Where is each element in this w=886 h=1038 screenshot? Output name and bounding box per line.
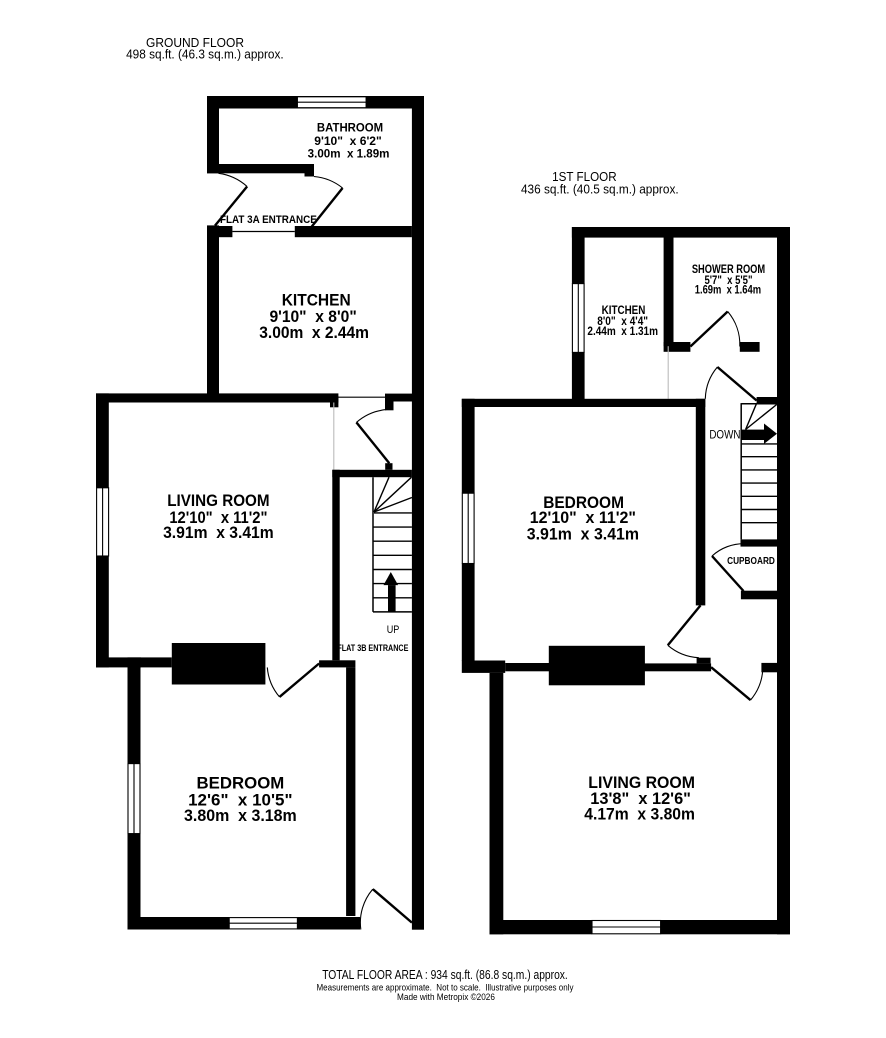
svg-text:FLAT 3A ENTRANCE: FLAT 3A ENTRANCE (220, 214, 317, 226)
svg-text:3.00m x 1.89m: 3.00m x 1.89m (308, 149, 390, 161)
svg-text:4.17m x 3.80m: 4.17m x 3.80m (584, 805, 695, 824)
svg-text:9'10" x 6'2": 9'10" x 6'2" (314, 136, 382, 148)
svg-text:498 sq.ft. (46.3 sq.m.) approx: 498 sq.ft. (46.3 sq.m.) approx. (126, 47, 284, 62)
svg-text:436 sq.ft. (40.5 sq.m.) approx: 436 sq.ft. (40.5 sq.m.) approx. (521, 181, 679, 196)
svg-text:3.91m x 3.41m: 3.91m x 3.41m (163, 523, 274, 542)
svg-text:3.80m x 3.18m: 3.80m x 3.18m (184, 806, 297, 825)
svg-text:3.91m x 3.41m: 3.91m x 3.41m (527, 525, 639, 544)
svg-text:BATHROOM: BATHROOM (317, 121, 383, 135)
svg-text:TOTAL FLOOR AREA : 934 sq.ft.: TOTAL FLOOR AREA : 934 sq.ft. (86.8 sq.m… (322, 968, 568, 982)
svg-text:CUPBOARD: CUPBOARD (727, 556, 775, 567)
svg-text:2.44m x 1.31m: 2.44m x 1.31m (587, 326, 658, 338)
svg-text:UP: UP (387, 624, 400, 636)
svg-text:SHOWER ROOM: SHOWER ROOM (692, 262, 765, 276)
svg-text:1.69m x 1.64m: 1.69m x 1.64m (695, 284, 761, 296)
svg-text:3.00m x 2.44m: 3.00m x 2.44m (259, 323, 369, 342)
svg-text:Made with Metropix ©2026: Made with Metropix ©2026 (397, 992, 495, 1002)
svg-text:KITCHEN: KITCHEN (602, 303, 646, 317)
svg-text:FLAT 3B ENTRANCE: FLAT 3B ENTRANCE (337, 643, 408, 653)
svg-text:DOWN: DOWN (709, 427, 740, 441)
